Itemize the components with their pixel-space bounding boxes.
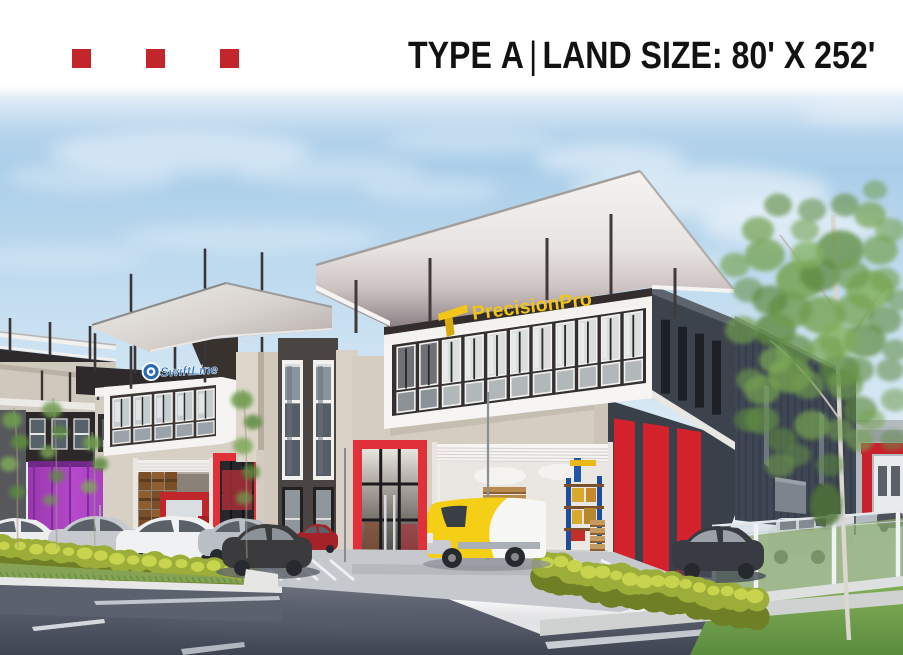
svg-text:SwiftLine: SwiftLine — [160, 362, 218, 380]
